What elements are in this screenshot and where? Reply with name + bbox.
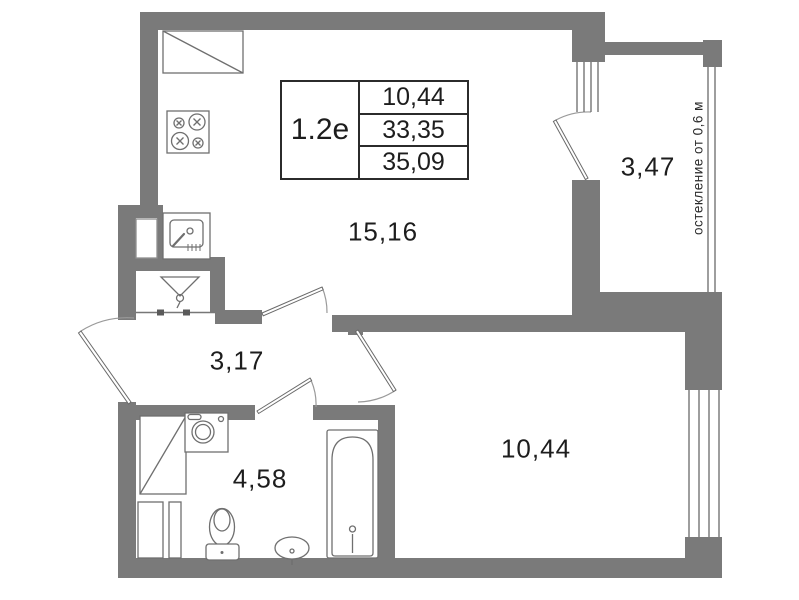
kitchen-appliance-icon xyxy=(163,213,210,259)
balcony-glazing xyxy=(708,67,715,292)
kitchen-sink-icon xyxy=(161,277,199,308)
entrance-door xyxy=(79,318,135,404)
toilet-icon xyxy=(206,509,239,561)
living-room-door xyxy=(262,287,327,316)
washing-machine-icon xyxy=(185,413,228,452)
stove-icon xyxy=(167,111,209,153)
kitchen-threshold xyxy=(136,310,215,316)
apartment-type-label: 1.2е xyxy=(282,82,360,178)
bedroom-window xyxy=(689,390,719,537)
balcony-window xyxy=(577,62,598,112)
balcony-door xyxy=(553,112,591,180)
bedroom-door xyxy=(356,330,397,402)
apartment-area-value: 33,35 xyxy=(360,115,467,148)
bathroom-cabinet-icon xyxy=(138,502,181,558)
room-label-hall: 3,17 xyxy=(210,346,265,377)
wall-niche xyxy=(136,219,157,258)
info-table-values: 10,44 33,35 35,09 xyxy=(360,82,467,178)
kitchen-cabinet-icon xyxy=(163,31,243,73)
bathroom-sink-icon xyxy=(275,537,309,565)
bathtub-icon xyxy=(327,430,378,558)
room-label-bedroom: 10,44 xyxy=(501,434,571,465)
room-label-balcony: 3,47 xyxy=(621,152,676,183)
info-table: 1.2е 10,44 33,35 35,09 xyxy=(280,80,469,180)
floor-plan: 15,16 3,17 4,58 10,44 3,47 остекление от… xyxy=(0,0,799,600)
room-label-living-kitchen: 15,16 xyxy=(348,217,418,248)
room-label-bathroom: 4,58 xyxy=(233,464,288,495)
total-area-value: 35,09 xyxy=(360,147,467,178)
glazing-note: остекление от 0,6 м xyxy=(691,101,706,235)
bathroom-door xyxy=(257,378,316,414)
wardrobe-icon xyxy=(140,416,186,494)
living-area-value: 10,44 xyxy=(360,82,467,115)
